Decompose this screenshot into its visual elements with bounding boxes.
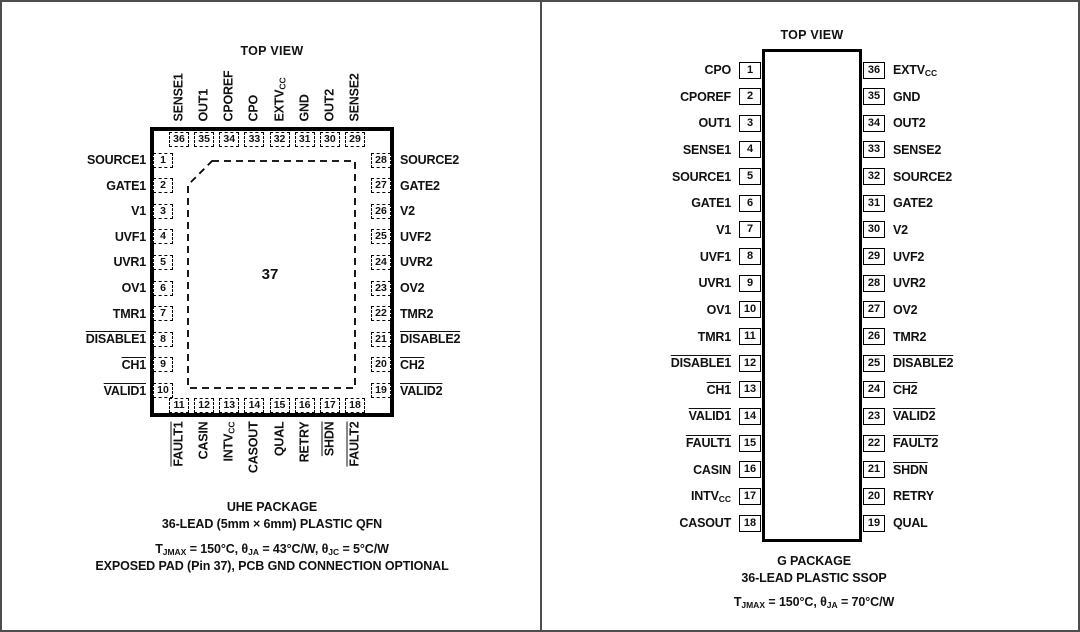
pin-label: UVF1: [28, 229, 146, 245]
pin-label: UVF1: [551, 249, 731, 265]
pin-label: GATE1: [551, 195, 731, 211]
pin-label: OV2: [400, 280, 530, 296]
pin-label: UVR2: [893, 275, 1073, 291]
pin-label: TMR1: [28, 306, 146, 322]
pin-box: 24: [371, 255, 391, 270]
pin-label: SENSE2: [893, 142, 1073, 158]
pin-label: SENSE2: [347, 58, 362, 122]
pin-box: 6: [739, 195, 761, 212]
pin-box: 24: [863, 381, 885, 398]
subscript: JMAX: [163, 547, 187, 557]
pin-box: 13: [739, 381, 761, 398]
pin-label: SOURCE1: [28, 152, 146, 168]
pin-label: INTVCC: [222, 422, 237, 486]
pin-label: UVR2: [400, 254, 530, 270]
thermal-note-line: TJMAX = 150°C, θJA = 43°C/W, θJC = 5°C/W: [22, 541, 522, 558]
qfn-top-view-label: TOP VIEW: [122, 44, 422, 58]
pin-box: 33: [863, 141, 885, 158]
pin-label: INTVCC: [551, 488, 731, 504]
subscript: JC: [328, 547, 339, 557]
qfn-package-name: UHE PACKAGE36-LEAD (5mm × 6mm) PLASTIC Q…: [22, 499, 522, 533]
pin-box: 18: [345, 398, 365, 413]
pin-box: 22: [371, 306, 391, 321]
pin-box: 11: [739, 328, 761, 345]
pin-box: 30: [863, 221, 885, 238]
pin-label: CASIN: [551, 462, 731, 478]
pin-box: 2: [739, 88, 761, 105]
panel-divider: [540, 2, 542, 632]
pin-box: 7: [153, 306, 173, 321]
pin-label: GATE1: [28, 178, 146, 194]
pin-label: QUAL: [272, 422, 287, 486]
pin-label: OUT1: [197, 58, 212, 122]
pin-box: 26: [371, 204, 391, 219]
pin-label: CPO: [247, 58, 262, 122]
pin-box: 34: [863, 115, 885, 132]
pin-label: OV2: [893, 302, 1073, 318]
active-low-label: DISABLE2: [893, 356, 953, 370]
ssop-thermal-note: TJMAX = 150°C, θJA = 70°C/W: [622, 594, 1006, 611]
pin-box: 12: [739, 355, 761, 372]
pin-box: 6: [153, 281, 173, 296]
pin-label: V1: [551, 222, 731, 238]
pin-label: CASOUT: [247, 422, 262, 486]
pin-label: SHDN: [322, 422, 337, 486]
pin-label: SOURCE1: [551, 169, 731, 185]
pin-box: 7: [739, 221, 761, 238]
pin-label: CH1: [551, 382, 731, 398]
active-low-label: CH2: [893, 383, 917, 397]
pin-box: 3: [153, 204, 173, 219]
ssop-package-name: G PACKAGE36-LEAD PLASTIC SSOP: [622, 553, 1006, 587]
pin-label: GND: [893, 89, 1073, 105]
pin-box: 25: [371, 229, 391, 244]
pin-box: 11: [169, 398, 189, 413]
pin-box: 15: [270, 398, 290, 413]
pin-box: 16: [739, 461, 761, 478]
pin-label: UVR1: [28, 254, 146, 270]
pin-box: 19: [863, 515, 885, 532]
pin-box: 26: [863, 328, 885, 345]
pin-box: 20: [863, 488, 885, 505]
pin-box: 13: [219, 398, 239, 413]
pin-label: CPO: [551, 62, 731, 78]
package-name-line: UHE PACKAGE: [22, 499, 522, 516]
pin-box: 9: [153, 357, 173, 372]
pin-label: FAULT2: [893, 435, 1073, 451]
pin-box: 22: [863, 435, 885, 452]
pin-box: 35: [194, 132, 214, 147]
pin-label: V1: [28, 203, 146, 219]
pin-box: 28: [371, 153, 391, 168]
pin-box: 8: [153, 332, 173, 347]
pin-box: 16: [295, 398, 315, 413]
pin-box: 32: [863, 168, 885, 185]
ssop-top-view-label: TOP VIEW: [662, 28, 962, 42]
active-low-label: VALID1: [104, 384, 146, 398]
pin-label: SOURCE2: [400, 152, 530, 168]
pin-label: FAULT1: [172, 422, 187, 486]
pin-label: OUT2: [322, 58, 337, 122]
pin-box: 10: [153, 383, 173, 398]
pin-label: DISABLE1: [28, 331, 146, 347]
pin-box: 23: [863, 408, 885, 425]
active-low-label: SHDN: [322, 422, 336, 457]
pin-label: RETRY: [297, 422, 312, 486]
pin-label: TMR2: [400, 306, 530, 322]
pin-box: 30: [320, 132, 340, 147]
package-name-line: 36-LEAD (5mm × 6mm) PLASTIC QFN: [22, 516, 522, 533]
active-low-label: FAULT2: [893, 436, 938, 450]
subscript: JMAX: [741, 600, 765, 610]
active-low-label: DISABLE1: [86, 332, 146, 346]
pin-label: DISABLE2: [893, 355, 1073, 371]
pin-box: 9: [739, 275, 761, 292]
pin-box: 17: [320, 398, 340, 413]
pin-label: EXTVCC: [272, 58, 287, 122]
pin-box: 19: [371, 383, 391, 398]
pin-label: DISABLE2: [400, 331, 530, 347]
subscript: JA: [248, 547, 259, 557]
subscript: CC: [925, 68, 937, 78]
qfn-exposed-pad-number: 37: [240, 266, 300, 283]
pin-label: VALID2: [893, 408, 1073, 424]
pin-box: 18: [739, 515, 761, 532]
pin-box: 31: [863, 195, 885, 212]
active-low-label: VALID2: [893, 409, 935, 423]
pin-label: TMR1: [551, 329, 731, 345]
active-low-label: DISABLE2: [400, 332, 460, 346]
active-low-label: CH1: [707, 383, 731, 397]
pin-box: 27: [863, 301, 885, 318]
pin-box: 4: [153, 229, 173, 244]
pin-label: OUT2: [893, 115, 1073, 131]
pin-box: 36: [169, 132, 189, 147]
pin-box: 2: [153, 178, 173, 193]
pin-label: SENSE1: [172, 58, 187, 122]
pin-label: GATE2: [400, 178, 530, 194]
pinout-figure: TOP VIEW 37 36SENSE135OUT134CPOREF33CPO3…: [0, 0, 1080, 632]
pin-label: CPOREF: [551, 89, 731, 105]
pin-box: 33: [244, 132, 264, 147]
pin-box: 3: [739, 115, 761, 132]
pin-box: 25: [863, 355, 885, 372]
active-low-label: SHDN: [893, 463, 928, 477]
pin-label: GATE2: [893, 195, 1073, 211]
pin-box: 14: [739, 408, 761, 425]
pin-box: 1: [739, 62, 761, 79]
pin-box: 10: [739, 301, 761, 318]
pin-box: 21: [371, 332, 391, 347]
pin-label: VALID1: [28, 383, 146, 399]
pin-label: UVF2: [893, 249, 1073, 265]
pin-box: 28: [863, 275, 885, 292]
pin-label: SOURCE2: [893, 169, 1073, 185]
active-low-label: FAULT2: [347, 422, 361, 467]
pin-label: SENSE1: [551, 142, 731, 158]
pin-box: 35: [863, 88, 885, 105]
pin-label: OV1: [28, 280, 146, 296]
pin-label: OUT1: [551, 115, 731, 131]
pin-label: DISABLE1: [551, 355, 731, 371]
pin-box: 32: [270, 132, 290, 147]
pin-box: 21: [863, 461, 885, 478]
pin-box: 17: [739, 488, 761, 505]
pin-box: 12: [194, 398, 214, 413]
pin-box: 8: [739, 248, 761, 265]
pin-label: VALID2: [400, 383, 530, 399]
pin-label: FAULT1: [551, 435, 731, 451]
pin-box: 14: [244, 398, 264, 413]
package-name-line: 36-LEAD PLASTIC SSOP: [622, 570, 1006, 587]
active-low-label: CH2: [400, 358, 424, 372]
qfn-thermal-note: TJMAX = 150°C, θJA = 43°C/W, θJC = 5°C/W…: [22, 541, 522, 575]
pin-label: QUAL: [893, 515, 1073, 531]
subscript: JA: [827, 600, 838, 610]
pin-box: 5: [153, 255, 173, 270]
pin-label: FAULT2: [347, 422, 362, 486]
pin-label: CH2: [400, 357, 530, 373]
pin-label: CASOUT: [551, 515, 731, 531]
active-low-label: FAULT1: [172, 422, 186, 467]
pin-label: CASIN: [197, 422, 212, 486]
pin-label: CH1: [28, 357, 146, 373]
pin-box: 36: [863, 62, 885, 79]
pin-label: GND: [297, 58, 312, 122]
thermal-note-line: TJMAX = 150°C, θJA = 70°C/W: [622, 594, 1006, 611]
subscript: CC: [719, 494, 731, 504]
pin-box: 27: [371, 178, 391, 193]
pin-label: UVR1: [551, 275, 731, 291]
pin-label: CH2: [893, 382, 1073, 398]
pin-box: 29: [863, 248, 885, 265]
active-low-label: DISABLE1: [671, 356, 731, 370]
pin-box: 5: [739, 168, 761, 185]
pin-box: 4: [739, 141, 761, 158]
subscript: CC: [227, 422, 237, 434]
active-low-label: FAULT1: [686, 436, 731, 450]
pin-box: 29: [345, 132, 365, 147]
active-low-label: VALID2: [400, 384, 442, 398]
pin-label: SHDN: [893, 462, 1073, 478]
pin-box: 1: [153, 153, 173, 168]
pin-label: VALID1: [551, 408, 731, 424]
pin-label: UVF2: [400, 229, 530, 245]
pin-box: 20: [371, 357, 391, 372]
ssop-package-outline: [762, 49, 862, 542]
pin-label: TMR2: [893, 329, 1073, 345]
pin-label: V2: [893, 222, 1073, 238]
active-low-label: VALID1: [689, 409, 731, 423]
pin-box: 15: [739, 435, 761, 452]
thermal-note-line: EXPOSED PAD (Pin 37), PCB GND CONNECTION…: [22, 558, 522, 575]
pin-box: 34: [219, 132, 239, 147]
pin-label: RETRY: [893, 488, 1073, 504]
pin-box: 23: [371, 281, 391, 296]
active-low-label: CH1: [122, 358, 146, 372]
pin-box: 31: [295, 132, 315, 147]
pin-label: V2: [400, 203, 530, 219]
subscript: CC: [277, 77, 287, 89]
pin-label: CPOREF: [222, 58, 237, 122]
pin-label: EXTVCC: [893, 62, 1073, 78]
package-name-line: G PACKAGE: [622, 553, 1006, 570]
pin-label: OV1: [551, 302, 731, 318]
